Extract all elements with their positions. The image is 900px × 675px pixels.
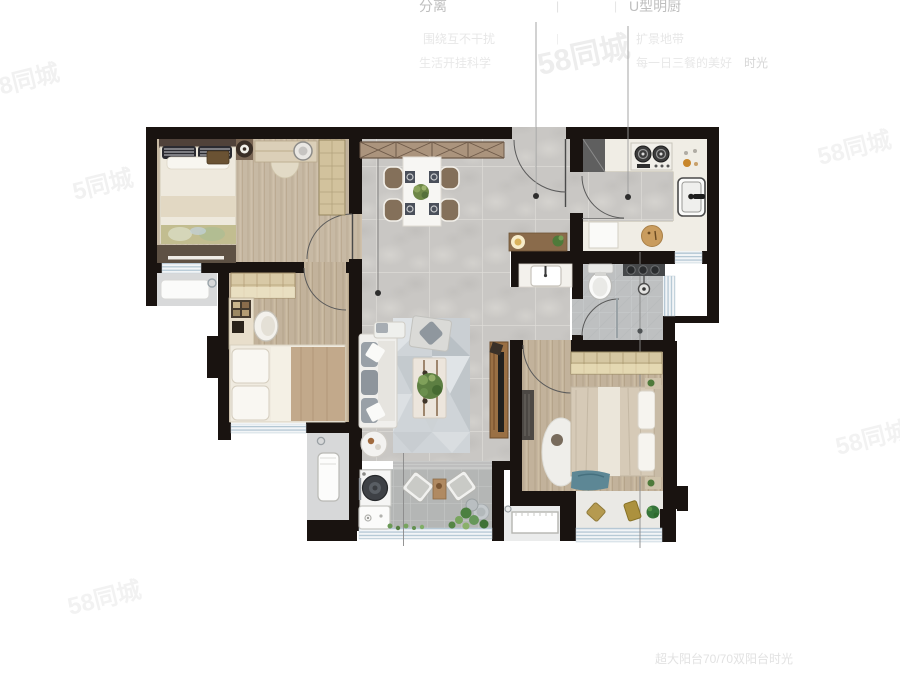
- svg-text:U型明厨: U型明厨: [629, 0, 681, 14]
- svg-text:超大阳台70/70双阳台时光: 超大阳台70/70双阳台时光: [655, 651, 793, 666]
- svg-text:|: |: [614, 0, 617, 13]
- svg-text:|: |: [556, 0, 559, 13]
- svg-text:扩景地带: 扩景地带: [636, 32, 684, 46]
- svg-text:分离: 分离: [419, 0, 447, 14]
- svg-text:生活开挂科学: 生活开挂科学: [419, 55, 491, 70]
- svg-text:围绕互不干扰: 围绕互不干扰: [423, 32, 495, 46]
- svg-text:每一日三餐的美好: 每一日三餐的美好: [636, 55, 732, 70]
- svg-text:|: |: [556, 33, 559, 45]
- svg-text:时光: 时光: [744, 56, 768, 70]
